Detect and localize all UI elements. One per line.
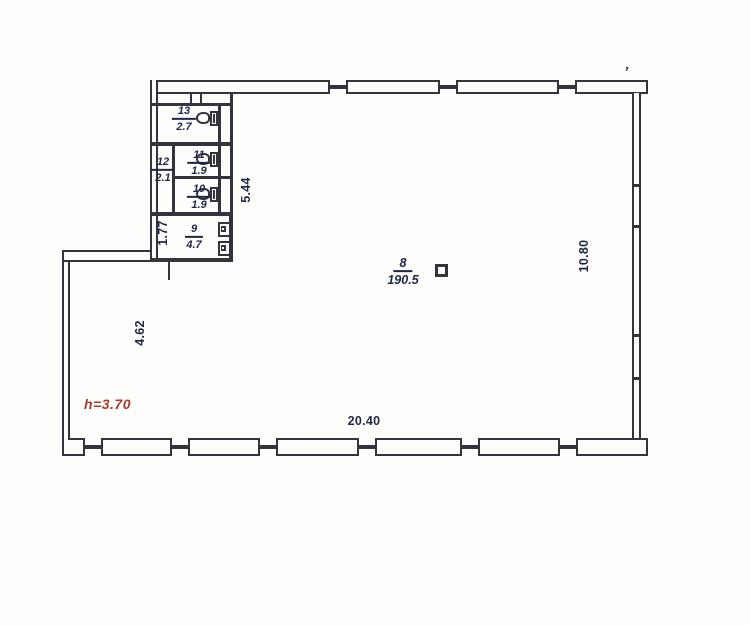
mullion-tick (632, 334, 641, 337)
window-mark (357, 438, 377, 456)
room-area: 4.7 (185, 238, 203, 252)
window-mark (438, 80, 458, 94)
room-number: 12 (151, 156, 175, 171)
wall-step (62, 250, 152, 262)
toilet-tank-icon (210, 111, 218, 126)
toilet-tank-icon (210, 187, 218, 202)
toilet-icon (196, 111, 220, 126)
column-marker (435, 264, 448, 277)
dimension-left: 4.62 (133, 320, 147, 346)
height-note: h=3.70 (84, 396, 131, 412)
window-mark (460, 438, 480, 456)
duct-connector (190, 94, 202, 103)
room-label-8: 8 190.5 (387, 256, 418, 288)
shaft-outer-line (230, 94, 233, 215)
room-area: 1.9 (187, 198, 211, 212)
window-mark (557, 80, 577, 94)
room-number: 9 (185, 223, 203, 238)
window-mark (558, 438, 578, 456)
room-area: 1.9 (187, 164, 210, 178)
stray-tick-mark: ’ (622, 64, 630, 81)
window-mark (170, 438, 190, 456)
room-number: 8 (394, 256, 413, 272)
room-label-13: 13 2.7 (172, 105, 196, 133)
dimension-bottom: 20.40 (348, 414, 381, 428)
sink-icon (218, 222, 231, 237)
room-number: 13 (172, 105, 196, 120)
room-number: 11 (187, 149, 210, 164)
room-area: 2.1 (151, 171, 175, 185)
mullion-tick (632, 184, 641, 187)
room-label-11: 11 1.9 (187, 149, 210, 177)
sink-icon (218, 241, 231, 256)
dimension-right: 10.80 (577, 240, 591, 273)
toilet-tank-icon (210, 152, 218, 167)
floor-plan: 13 2.7 11 1.9 12 2.1 10 1.9 9 4.7 8 190.… (0, 0, 750, 625)
wall-right-glazing (632, 93, 641, 438)
dimension-entry: 1.77 (156, 220, 170, 246)
toilet-bowl-icon (196, 112, 210, 124)
dimension-extension-line (168, 262, 170, 280)
wall-left (62, 250, 70, 440)
mullion-tick (632, 377, 641, 380)
window-mark (258, 438, 278, 456)
room-area: 190.5 (387, 273, 418, 288)
room-label-9: 9 4.7 (185, 223, 203, 251)
mullion-tick (632, 225, 641, 228)
window-mark (328, 80, 348, 94)
room-label-10: 10 1.9 (187, 183, 211, 211)
room-number: 10 (187, 183, 211, 198)
room-area: 2.7 (172, 120, 196, 134)
dimension-block: 5.44 (239, 177, 253, 203)
partition-9-bottom (152, 258, 233, 262)
room-label-12: 12 2.1 (151, 156, 175, 184)
window-mark (83, 438, 103, 456)
